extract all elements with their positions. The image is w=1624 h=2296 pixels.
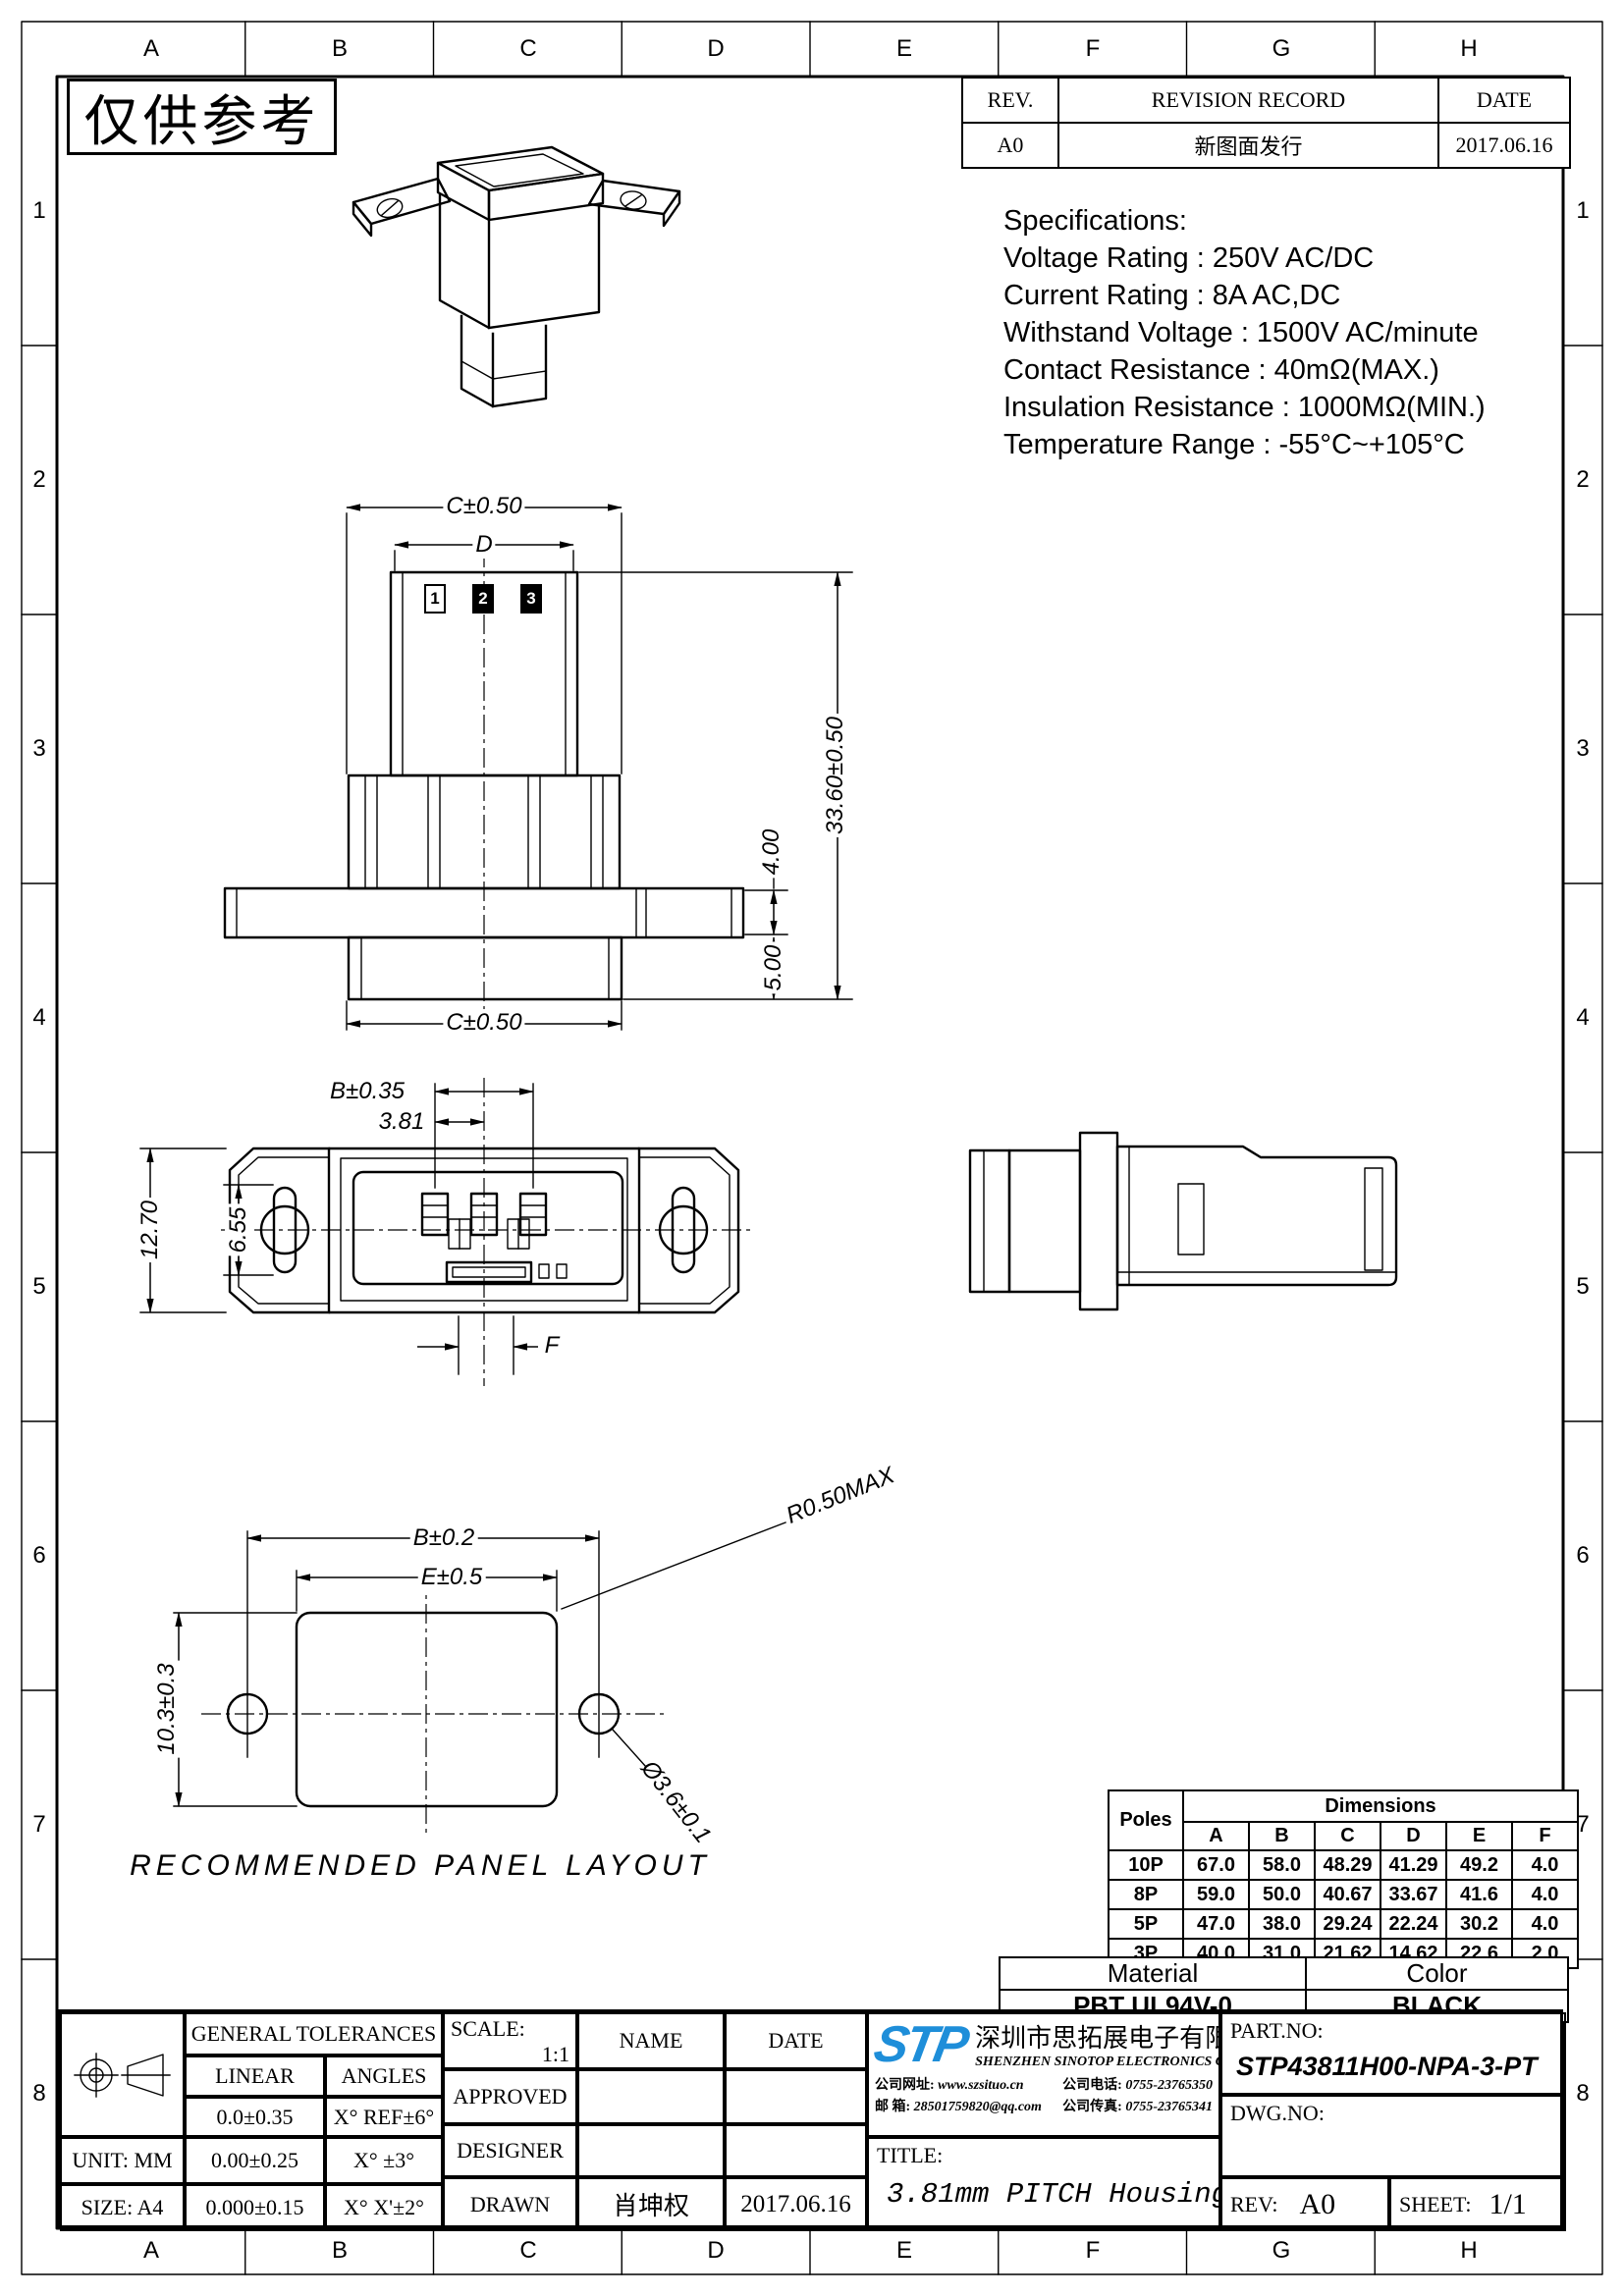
zone-number-right: 1 xyxy=(1576,197,1589,225)
pin-3-marker: 3 xyxy=(520,584,542,614)
zone-letter-bottom: F xyxy=(1086,2237,1101,2265)
title-block: GENERAL TOLERANCES LINEAR ANGLES 0.0±0.3… xyxy=(57,2009,1563,2228)
zone-number-right: 6 xyxy=(1576,1542,1589,1570)
scale-value: 1:1 xyxy=(542,2042,569,2067)
reference-only-stamp: 仅供参考 xyxy=(67,79,337,155)
rev-header: REV. xyxy=(962,78,1058,123)
angles-header: ANGLES xyxy=(325,2056,443,2097)
dim-d: D xyxy=(472,531,495,559)
record-header: REVISION RECORD xyxy=(1058,78,1438,123)
zone-letter-bottom: H xyxy=(1460,2237,1477,2265)
cell: 49.2 xyxy=(1446,1850,1512,1880)
dwg-no-label: DWG.NO: xyxy=(1230,2101,1325,2126)
dim-flange: 4.00 xyxy=(758,827,785,879)
zone-number-right: 3 xyxy=(1576,735,1589,763)
dim-slot: 6.55 xyxy=(225,1204,252,1256)
zone-letter-top: D xyxy=(707,35,724,63)
zone-number-right: 4 xyxy=(1576,1004,1589,1032)
poles-header: Poles xyxy=(1109,1790,1183,1850)
cell: 29.24 xyxy=(1315,1909,1380,1939)
dimensions-header: Dimensions xyxy=(1183,1790,1578,1822)
zone-number-left: 3 xyxy=(32,735,45,763)
scale-cell: SCALE: 1:1 xyxy=(443,2012,577,2069)
cell: 33.67 xyxy=(1380,1880,1446,1909)
cell: 50.0 xyxy=(1249,1880,1315,1909)
company-block: STP 深圳市思拓展电子有限公司 SHENZHEN SINOTOP ELECTR… xyxy=(867,2012,1220,2137)
material-header: Material xyxy=(1000,1957,1306,1990)
pin-2-marker: 2 xyxy=(472,584,494,614)
record-value: 新图面发行 xyxy=(1058,123,1438,168)
dim-panel-e: E±0.5 xyxy=(418,1564,486,1591)
specifications-block: Specifications: Voltage Rating : 250V AC… xyxy=(1003,202,1486,463)
cell: 41.6 xyxy=(1446,1880,1512,1909)
zone-number-left: 8 xyxy=(32,2080,45,2108)
zone-number-right: 8 xyxy=(1576,2080,1589,2108)
dim-f: F xyxy=(542,1332,563,1360)
designer-name-empty xyxy=(577,2124,725,2177)
company-fax: 0755-23765341 xyxy=(1125,2100,1213,2114)
col-e: E xyxy=(1446,1822,1512,1850)
rev-value: A0 xyxy=(1299,2188,1335,2221)
cell: 4.0 xyxy=(1512,1850,1578,1880)
zone-number-left: 1 xyxy=(32,197,45,225)
approved-label: APPROVED xyxy=(443,2069,577,2124)
spec-line: Withstand Voltage : 1500V AC/minute xyxy=(1003,314,1486,351)
dim-c-bottom: C±0.50 xyxy=(443,1009,524,1037)
tolerance-angle-1: X° REF±6° xyxy=(325,2097,443,2137)
unit-cell: UNIT: MM xyxy=(60,2137,185,2184)
sheet-label: SHEET: xyxy=(1399,2192,1471,2217)
part-no-cell: PART.NO: STP43811H00-NPA-3-PT xyxy=(1220,2012,1566,2095)
drawn-name: 肖坤权 xyxy=(577,2177,725,2231)
panel-layout-caption: RECOMMENDED PANEL LAYOUT xyxy=(127,1849,714,1883)
cell: 4.0 xyxy=(1512,1880,1578,1909)
dim-panel-height: 10.3±0.3 xyxy=(153,1660,181,1757)
company-web: www.szsituo.cn xyxy=(938,2078,1023,2093)
drawn-date: 2017.06.16 xyxy=(725,2177,867,2231)
cell: 22.24 xyxy=(1380,1909,1446,1939)
approved-date-empty xyxy=(725,2069,867,2124)
company-tel: 0755-23765350 xyxy=(1125,2078,1213,2093)
specs-title: Specifications: xyxy=(1003,202,1486,240)
dim-tail: 5.00 xyxy=(760,942,787,994)
linear-header: LINEAR xyxy=(185,2056,325,2097)
zone-letter-top: G xyxy=(1272,35,1291,63)
title-cell: TITLE: 3.81mm PITCH Housing xyxy=(867,2137,1220,2231)
zone-number-left: 7 xyxy=(32,1811,45,1839)
side-view xyxy=(970,1133,1396,1309)
col-b: B xyxy=(1249,1822,1315,1850)
general-tolerances-header: GENERAL TOLERANCES xyxy=(185,2012,443,2056)
zone-letter-bottom: G xyxy=(1272,2237,1291,2265)
scale-label: SCALE: xyxy=(451,2016,525,2042)
projection-symbol-cell xyxy=(60,2012,185,2137)
company-name-cn: 深圳市思拓展电子有限公司 xyxy=(975,2018,1220,2055)
cell: 38.0 xyxy=(1249,1909,1315,1939)
spec-line: Contact Resistance : 40mΩ(MAX.) xyxy=(1003,351,1486,389)
rev-cell: REV: A0 xyxy=(1220,2177,1389,2231)
dim-total-height: 33.60±0.50 xyxy=(822,714,849,837)
tolerance-angle-2: X° ±3° xyxy=(325,2137,443,2184)
cell: 67.0 xyxy=(1183,1850,1249,1880)
zone-letter-top: F xyxy=(1086,35,1101,63)
date-header: DATE xyxy=(1438,78,1570,123)
dim-panel-b: B±0.2 xyxy=(410,1524,478,1552)
zone-letter-top: B xyxy=(332,35,348,63)
cell: 30.2 xyxy=(1446,1909,1512,1939)
title-label: TITLE: xyxy=(877,2143,943,2168)
size-cell: SIZE: A4 xyxy=(60,2184,185,2231)
zone-number-right: 2 xyxy=(1576,466,1589,494)
zone-letter-top: C xyxy=(519,35,536,63)
company-logo: STP xyxy=(870,2019,969,2070)
pole-5p: 5P xyxy=(1109,1909,1183,1939)
pin-1-marker: 1 xyxy=(424,584,446,614)
table-row: 8P 59.0 50.0 40.67 33.67 41.6 4.0 xyxy=(1109,1880,1578,1909)
cell: 48.29 xyxy=(1315,1850,1380,1880)
company-web-label: 公司网址: xyxy=(875,2078,935,2093)
zone-letter-bottom: B xyxy=(332,2237,348,2265)
color-header: Color xyxy=(1306,1957,1568,1990)
col-f: F xyxy=(1512,1822,1578,1850)
part-no-label: PART.NO: xyxy=(1230,2018,1324,2044)
company-tel-label: 公司电话: xyxy=(1062,2078,1122,2093)
tolerance-angle-3: X° X'±2° xyxy=(325,2184,443,2231)
tolerance-linear-1: 0.0±0.35 xyxy=(185,2097,325,2137)
drawn-label: DRAWN xyxy=(443,2177,577,2231)
cell: 47.0 xyxy=(1183,1909,1249,1939)
sheet-cell: SHEET: 1/1 xyxy=(1389,2177,1566,2231)
isometric-view xyxy=(353,147,679,406)
zone-letter-bottom: D xyxy=(707,2237,724,2265)
col-d: D xyxy=(1380,1822,1446,1850)
company-name-en: SHENZHEN SINOTOP ELECTRONICS CO.,LTD xyxy=(975,2055,1220,2070)
col-c: C xyxy=(1315,1822,1380,1850)
col-a: A xyxy=(1183,1822,1249,1850)
table-row: 10P 67.0 58.0 48.29 41.29 49.2 4.0 xyxy=(1109,1850,1578,1880)
company-mail: 28501759820@qq.com xyxy=(914,2100,1042,2114)
dim-pitch: 3.81 xyxy=(376,1108,428,1136)
zone-number-left: 6 xyxy=(32,1542,45,1570)
zone-letter-top: E xyxy=(896,35,912,63)
spec-line: Current Rating : 8A AC,DC xyxy=(1003,277,1486,314)
designer-label: DESIGNER xyxy=(443,2124,577,2177)
cell: 4.0 xyxy=(1512,1909,1578,1939)
spec-line: Temperature Range : -55°C~+105°C xyxy=(1003,426,1486,463)
zone-letter-bottom: C xyxy=(519,2237,536,2265)
cell: 40.67 xyxy=(1315,1880,1380,1909)
sheet-value: 1/1 xyxy=(1489,2188,1526,2221)
company-fax-label: 公司传真: xyxy=(1062,2100,1122,2114)
tolerance-linear-3: 0.000±0.15 xyxy=(185,2184,325,2231)
zone-letter-top: H xyxy=(1460,35,1477,63)
cell: 58.0 xyxy=(1249,1850,1315,1880)
cell: 41.29 xyxy=(1380,1850,1446,1880)
pole-8p: 8P xyxy=(1109,1880,1183,1909)
zone-number-left: 4 xyxy=(32,1004,45,1032)
zone-number-left: 5 xyxy=(32,1273,45,1301)
poles-dimensions-table: Poles Dimensions A B C D E F 10P 67.0 58… xyxy=(1108,1789,1579,1969)
pole-10p: 10P xyxy=(1109,1850,1183,1880)
zone-letter-bottom: E xyxy=(896,2237,912,2265)
approved-name-empty xyxy=(577,2069,725,2124)
drawing-title: 3.81mm PITCH Housing xyxy=(887,2178,1220,2211)
third-angle-projection-icon xyxy=(69,2031,177,2119)
rev-label: REV: xyxy=(1230,2192,1277,2217)
tolerance-linear-2: 0.00±0.25 xyxy=(185,2137,325,2184)
zone-letter-bottom: A xyxy=(143,2237,159,2265)
cell: 59.0 xyxy=(1183,1880,1249,1909)
spec-line: Voltage Rating : 250V AC/DC xyxy=(1003,240,1486,277)
designer-date-empty xyxy=(725,2124,867,2177)
dwg-no-cell: DWG.NO: xyxy=(1220,2095,1566,2177)
date-header: DATE xyxy=(725,2012,867,2069)
drawing-sheet: 仅供参考 A B C D E F G H A B C D E F G H 1 2… xyxy=(0,0,1624,2296)
dim-height: 12.70 xyxy=(136,1198,164,1262)
date-value: 2017.06.16 xyxy=(1438,123,1570,168)
dim-b-pins: B±0.35 xyxy=(327,1078,407,1105)
name-header: NAME xyxy=(577,2012,725,2069)
revision-table: REV. REVISION RECORD DATE A0 新图面发行 2017.… xyxy=(961,77,1571,169)
rev-value: A0 xyxy=(962,123,1058,168)
zone-letter-top: A xyxy=(143,35,159,63)
spec-line: Insulation Resistance : 1000MΩ(MIN.) xyxy=(1003,389,1486,426)
part-no-value: STP43811H00-NPA-3-PT xyxy=(1236,2052,1538,2082)
dim-c-top: C±0.50 xyxy=(443,493,524,520)
zone-number-right: 5 xyxy=(1576,1273,1589,1301)
table-row: 5P 47.0 38.0 29.24 22.24 30.2 4.0 xyxy=(1109,1909,1578,1939)
zone-number-left: 2 xyxy=(32,466,45,494)
company-mail-label: 邮 箱: xyxy=(875,2100,910,2114)
